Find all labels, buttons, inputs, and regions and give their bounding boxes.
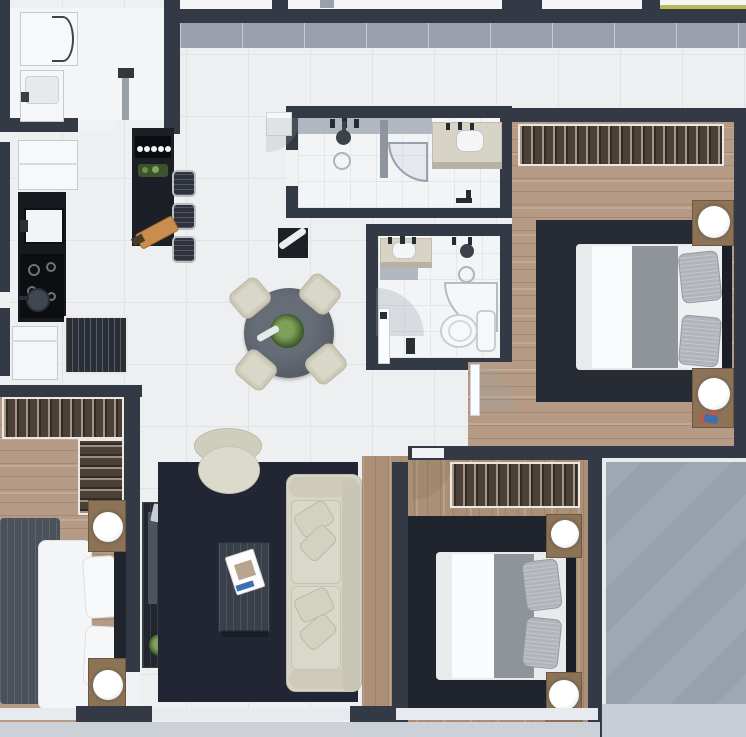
tray-garnish-1: [142, 167, 148, 173]
bottom-outside-paving: [0, 722, 600, 737]
fridge-door-line: [18, 163, 78, 165]
sofa-backrest: [342, 480, 360, 692]
bathroom2-step: [380, 268, 418, 280]
master-top-wall: [512, 108, 746, 122]
master-right-wall: [734, 108, 746, 452]
island-bottle-2: [144, 146, 150, 152]
master-wardrobe: [518, 124, 724, 166]
balcony-divider-wall: [588, 452, 602, 737]
tray-garnish-2: [152, 166, 159, 173]
master-pillow-1: [677, 250, 722, 304]
floor-plan: [0, 0, 746, 737]
top-divider-a: [272, 0, 288, 9]
pan: [26, 288, 50, 312]
top-divider-b: [502, 0, 542, 9]
burner-1: [28, 264, 40, 276]
master-lamp-top: [698, 206, 730, 238]
bathroom2-drain: [458, 266, 475, 283]
master-pillow-2: [678, 314, 722, 367]
left-wall: [0, 0, 10, 398]
bar-stool-1: [172, 170, 196, 197]
bedroom2-wardrobe: [2, 397, 124, 439]
top-room-a: [180, 0, 272, 9]
master-lamp-bottom: [698, 378, 730, 410]
bathroom1-tap-1: [330, 119, 335, 128]
balcony-top-wall: [598, 446, 746, 458]
fridge: [18, 140, 78, 190]
bathroom1-shower-head: [336, 130, 351, 145]
bathroom1-shower-arm: [342, 121, 346, 131]
dishwasher-line: [12, 340, 58, 342]
bedroom3-lamp-top: [551, 520, 579, 548]
bedroom3-pillow-1: [521, 558, 563, 612]
top-room-c: [542, 0, 642, 9]
utility-tap-pole: [122, 74, 129, 120]
top-room-object: [320, 0, 334, 8]
bathroom1-vanity-tap-3: [470, 123, 474, 130]
bedroom3-wardrobe: [450, 462, 580, 508]
bathroom2-shower-tap-1: [452, 237, 456, 245]
bathroom1-partition: [380, 120, 388, 178]
balcony-rail-top: [606, 458, 746, 462]
kitchen-sink-tap: [20, 220, 28, 232]
bathroom1-mixer-b: [466, 190, 471, 201]
balcony-rail-left: [602, 458, 606, 704]
tv-unit: [148, 512, 157, 604]
bedroom3-pillow-2: [521, 616, 562, 669]
bathroom1-vanity-tap-1: [446, 123, 450, 130]
bathroom2-tap-2: [400, 236, 405, 244]
pan-handle: [19, 296, 29, 300]
bedroom2-lamp-bottom: [93, 670, 123, 700]
washer-drum-arc: [52, 16, 74, 62]
master-headboard: [722, 242, 732, 372]
master-bed-runner: [632, 246, 678, 368]
bathroom1-vanity-edge: [432, 162, 502, 169]
bathroom2-shower-tap-2: [468, 237, 472, 245]
kitchen-sink: [24, 208, 64, 244]
utility-tap-head: [118, 68, 134, 78]
master-entry-door: [470, 364, 480, 416]
bedroom3-door-opening: [412, 448, 444, 458]
laundry-tub-basin: [25, 76, 59, 104]
top-wall: [172, 9, 746, 23]
burner-2: [46, 262, 56, 272]
bathroom1-tap-3: [354, 119, 359, 128]
bedroom2-lamp-top: [93, 512, 123, 542]
bathroom2-tap-3: [412, 237, 416, 244]
armchair-seat: [198, 446, 260, 494]
balcony-slab: [602, 458, 746, 737]
toilet-tank: [476, 310, 496, 352]
laundry-door-opening: [78, 120, 116, 130]
island-bottle-5: [165, 146, 171, 152]
bedroom3-lamp-bottom: [549, 680, 579, 710]
bedroom3-left-wall: [392, 462, 408, 737]
island-bottle-4: [158, 146, 164, 152]
coffee-table-shadow: [222, 630, 268, 637]
bedroom3-bed-sheet: [452, 554, 494, 678]
bathroom2-tap-1: [388, 237, 392, 244]
top-divider-c: [642, 0, 660, 9]
laundry-tub-tap: [21, 92, 29, 102]
bathroom1-door-opening: [286, 150, 298, 186]
bedroom2-top-wall: [0, 385, 142, 397]
laundry-right-wall: [164, 0, 180, 134]
bathroom1-sink: [456, 130, 484, 152]
bathroom1-vanity-tap-2: [458, 122, 462, 130]
bathroom2-shower-head: [460, 244, 474, 258]
terrace-band: [180, 22, 746, 48]
dishwasher: [12, 326, 58, 380]
master-bed-sheet: [592, 246, 632, 368]
island-bottle-3: [151, 146, 157, 152]
toilet-seat-ring: [448, 320, 472, 342]
left-wall-window-2: [0, 292, 10, 308]
kitchen-rack: [64, 316, 128, 374]
bathroom1-counter-strip: [298, 118, 432, 134]
balcony-bottom-paving: [602, 704, 746, 737]
toilet-brush: [406, 338, 415, 354]
bedroom3-headboard: [566, 554, 576, 680]
hall-door-handle: [380, 312, 387, 319]
bathroom2-sink: [392, 242, 416, 259]
bar-stool-3: [172, 236, 196, 263]
bathroom1-drain: [333, 152, 351, 170]
island-bottle-1: [137, 146, 143, 152]
